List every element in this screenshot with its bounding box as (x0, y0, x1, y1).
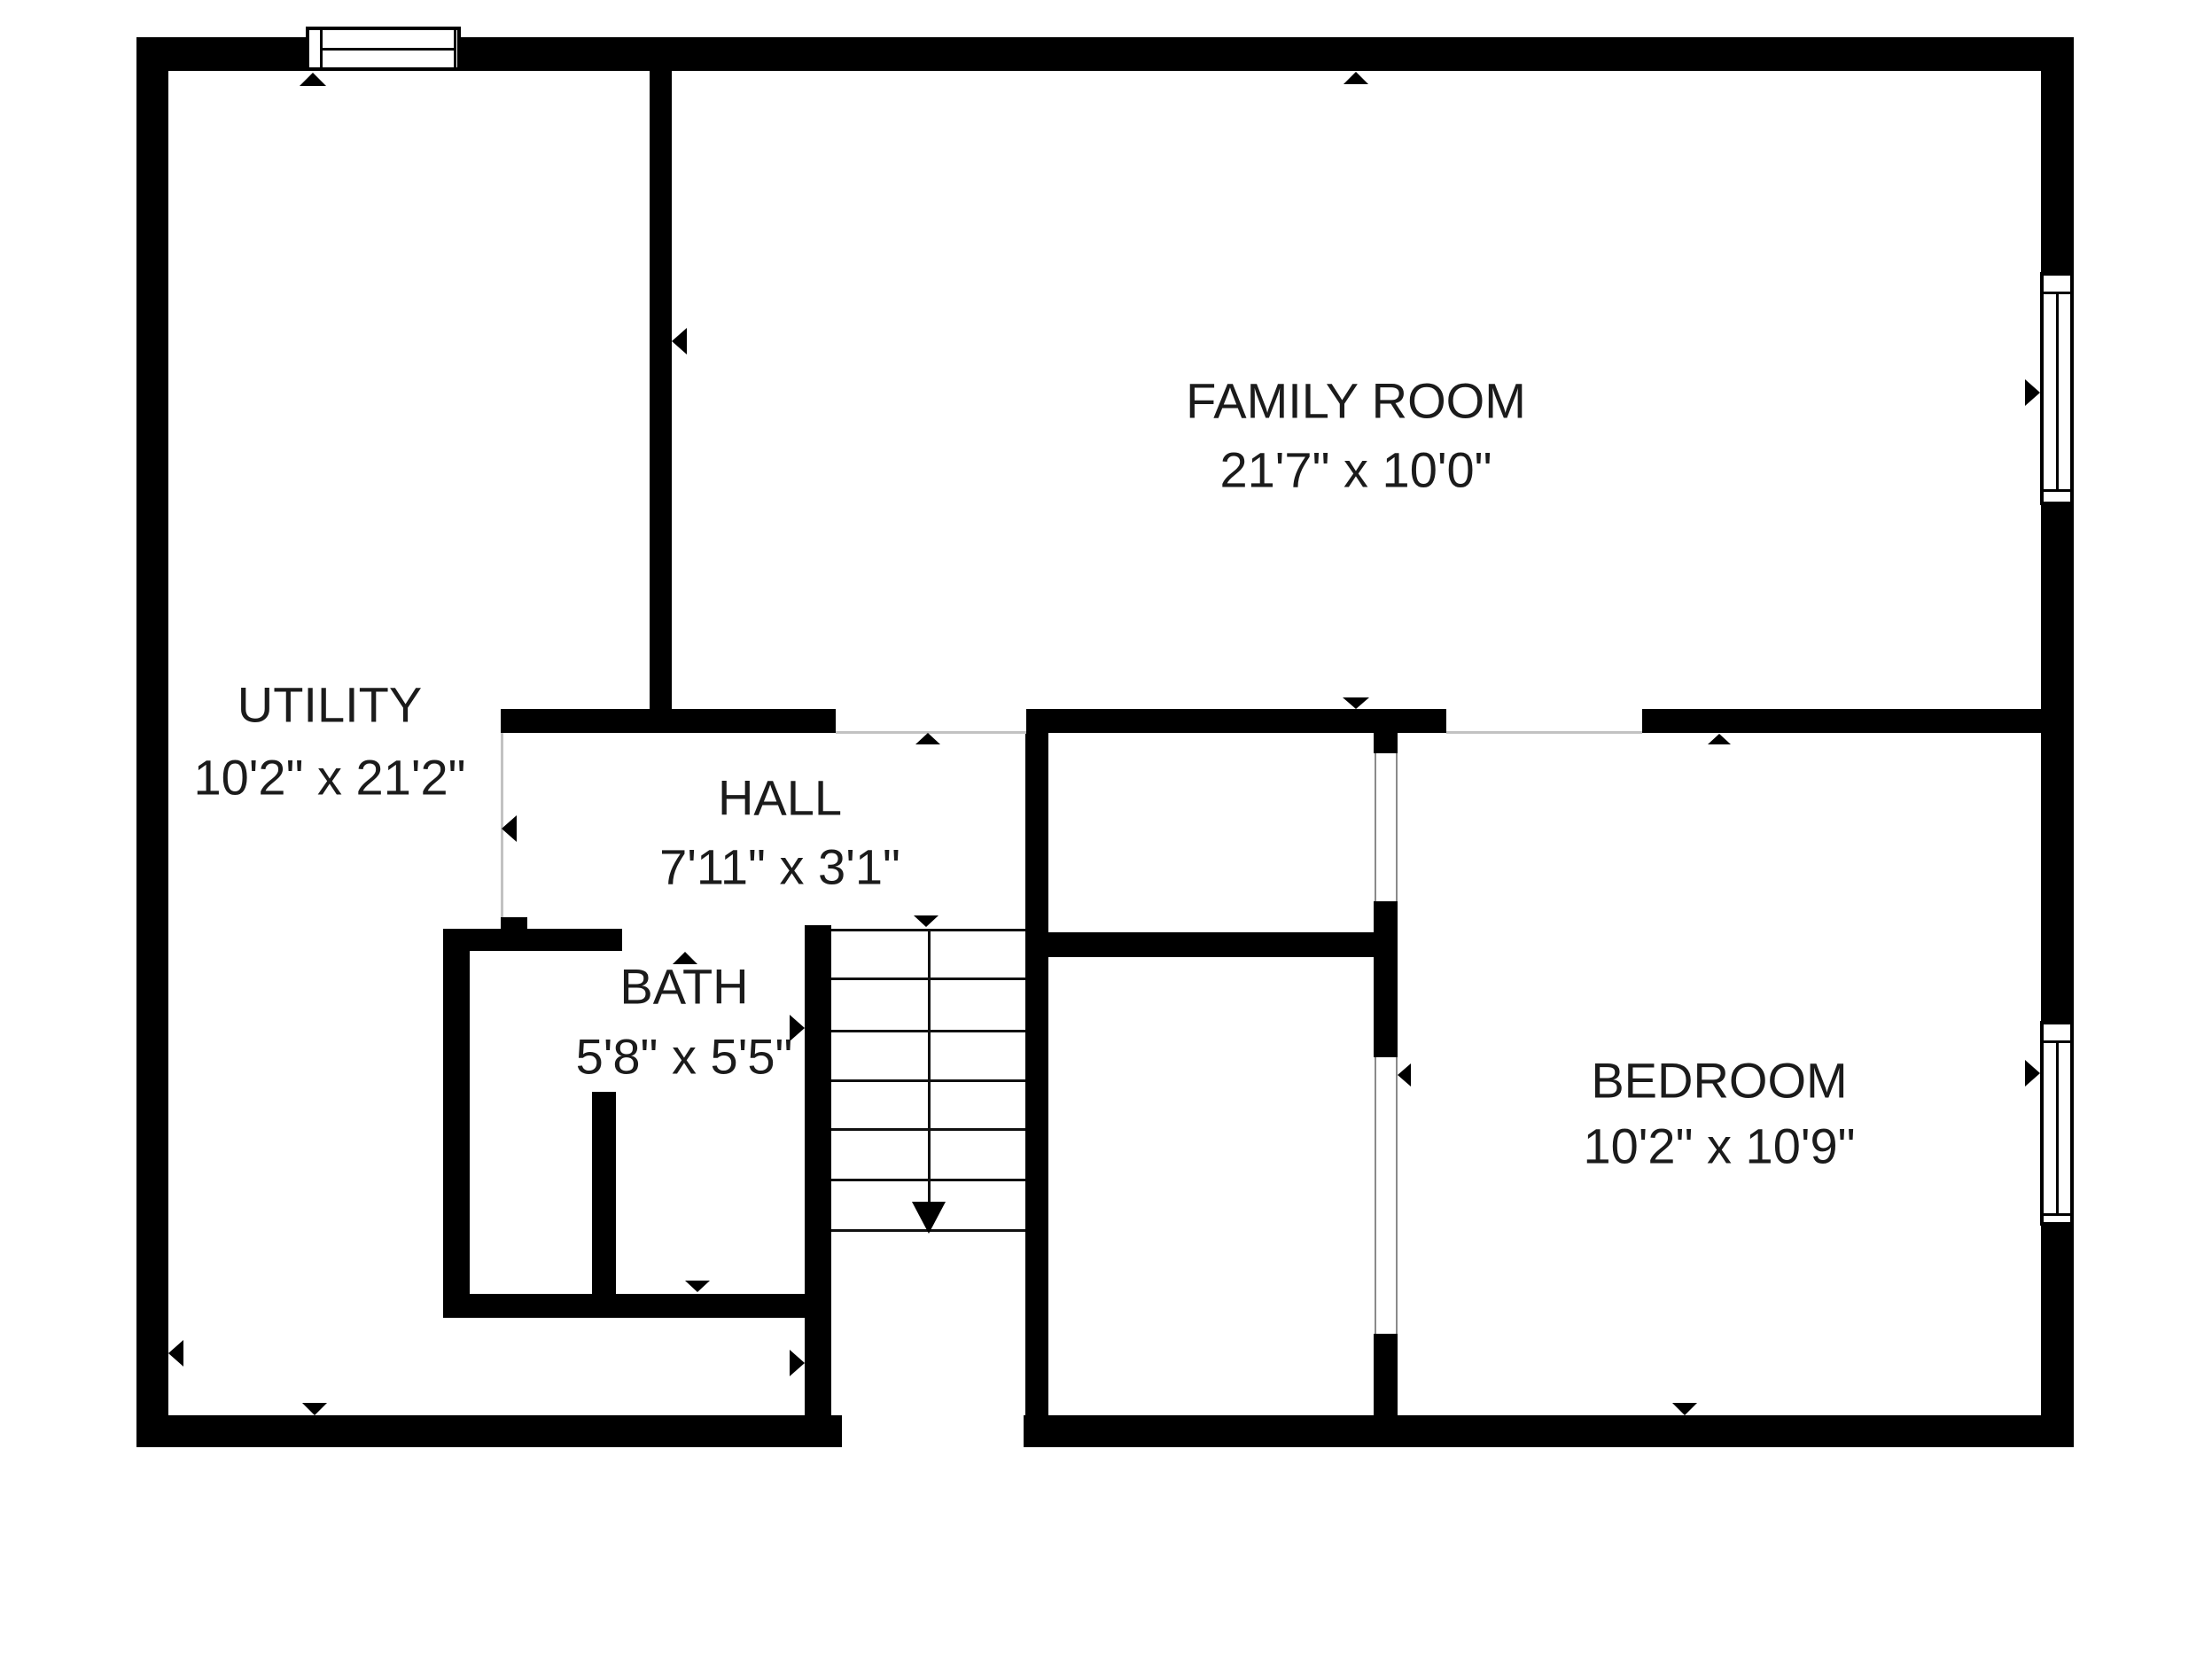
wall-outer-bottom-left (136, 1415, 842, 1447)
room-label-hall: HALL (718, 769, 842, 827)
marker-utility-family-icon (672, 328, 687, 354)
window-top-mullion (454, 30, 456, 67)
room-name: UTILITY (238, 676, 422, 734)
room-dims-hall: 7'11" x 3'1" (659, 838, 900, 896)
wall-stairs-west (805, 925, 831, 1447)
room-label-family-room: FAMILY ROOM (1186, 372, 1526, 430)
window-top-mullion (320, 48, 454, 51)
room-name: BATH (619, 958, 748, 1016)
marker-family-top-icon (1344, 72, 1368, 84)
window-right-lower (2040, 1021, 2074, 1226)
floor-plan: FAMILY ROOM 21'7" x 10'0" UTILITY 10'2" … (0, 0, 2212, 1659)
room-label-bath: BATH (619, 958, 748, 1016)
wall-bedroom-west-mid (1374, 901, 1398, 1057)
marker-window-lower-icon (2025, 1060, 2040, 1087)
room-label-utility: UTILITY (238, 676, 422, 734)
marker-bedroom-door-icon (1398, 1063, 1411, 1087)
wall-bath-west (443, 929, 470, 1316)
marker-utility-southwest-icon (168, 1340, 183, 1367)
window-right-upper-mullion (2056, 292, 2059, 489)
wall-bedroom-top (1642, 709, 2041, 733)
wall-closet-top (1026, 709, 1446, 733)
wall-outer-right (2041, 37, 2074, 1447)
window-top (306, 27, 461, 71)
room-name: FAMILY ROOM (1186, 372, 1526, 430)
window-right-upper (2040, 272, 2074, 505)
room-dimensions: 10'2" x 21'2" (193, 749, 465, 806)
wall-hall-top (501, 709, 836, 733)
window-right-upper-mullion (2044, 489, 2070, 492)
wall-bedroom-west-stub (1374, 733, 1398, 753)
wall-outer-bottom-right (1024, 1415, 2074, 1447)
room-dimensions: 21'7" x 10'0" (1219, 441, 1492, 499)
line-bedroom-door-jamb-east (1396, 1057, 1398, 1334)
wall-closet-bottom (1048, 932, 1398, 957)
wall-bath-top (443, 929, 622, 951)
marker-hall-family-door-icon (915, 733, 940, 744)
line-closet-door-jamb-west (1375, 753, 1376, 901)
line-bedroom-door-jamb-west (1375, 1057, 1376, 1334)
room-dims-bath: 5'8" x 5'5" (576, 1028, 793, 1086)
room-label-bedroom: BEDROOM (1591, 1052, 1847, 1110)
line-closet-door-jamb-east (1396, 753, 1398, 901)
wall-hall-sw-corner (501, 917, 527, 951)
marker-bedroom-top-icon (1708, 734, 1731, 744)
room-dims-family-room: 21'7" x 10'0" (1219, 441, 1492, 499)
marker-hall-stairs-icon (914, 915, 939, 927)
window-right-lower-mullion (2056, 1040, 2059, 1213)
marker-bottom-left-wall-icon (302, 1403, 327, 1415)
stair-direction-line (928, 929, 931, 1203)
marker-under-stairs-icon (790, 1350, 805, 1376)
room-name: HALL (718, 769, 842, 827)
marker-closet-top-icon (1343, 697, 1369, 709)
room-dimensions: 5'8" x 5'5" (576, 1028, 793, 1086)
wall-bath-bottom (443, 1294, 831, 1318)
marker-bottom-right-wall-icon (1672, 1403, 1697, 1415)
wall-bath-inner-stub (592, 1092, 616, 1294)
stair-down-arrow-icon (912, 1202, 946, 1234)
line-family-bedroom-opening (1446, 731, 1642, 734)
room-dimensions: 7'11" x 3'1" (659, 838, 900, 896)
wall-stairs-east (1025, 733, 1048, 1447)
wall-bedroom-west-low (1374, 1334, 1398, 1447)
wall-utility-family-divider (650, 71, 672, 711)
window-right-lower-mullion (2044, 1213, 2070, 1216)
marker-bath-inner-icon (685, 1281, 710, 1292)
marker-top-window-icon (300, 73, 326, 86)
plan-geometry-layer (0, 0, 2212, 1659)
wall-outer-left (136, 37, 168, 1447)
room-dims-utility: 10'2" x 21'2" (193, 749, 465, 806)
marker-window-upper-icon (2025, 379, 2040, 406)
marker-hall-west-door-icon (502, 815, 517, 842)
room-name: BEDROOM (1591, 1052, 1847, 1110)
room-dimensions: 10'2" x 10'9" (1583, 1118, 1855, 1175)
room-dims-bedroom: 10'2" x 10'9" (1583, 1118, 1855, 1175)
